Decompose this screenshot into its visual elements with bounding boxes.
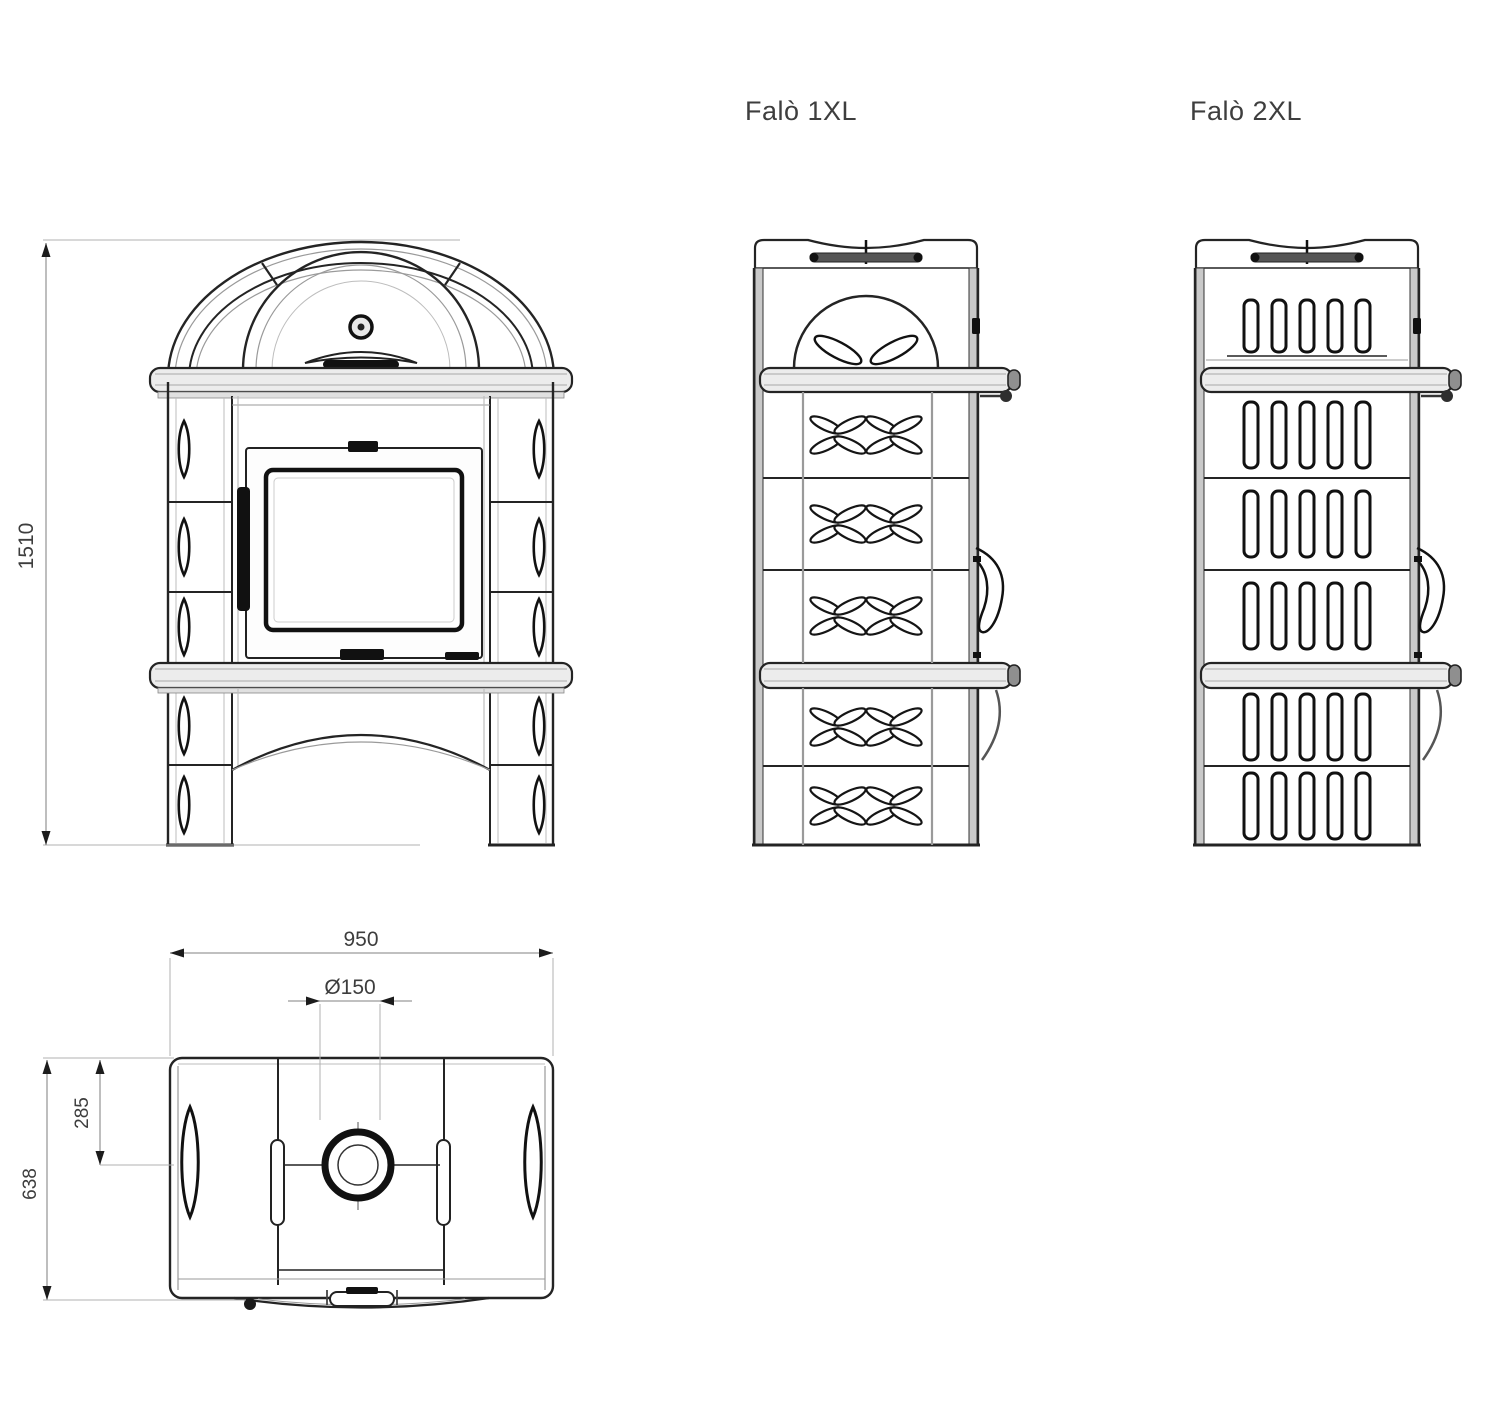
dim-width-label: 950 (343, 928, 378, 951)
panel-pill (271, 1140, 284, 1225)
column-tile-lens (534, 777, 545, 833)
dim-depth-label: 638 (20, 1168, 41, 1200)
column-tile-lens (179, 777, 190, 833)
side-frame (752, 239, 1020, 845)
side-view-1xl (752, 239, 1020, 845)
left-column (166, 382, 234, 845)
door-hinge (237, 487, 250, 611)
side-view-2xl (1193, 239, 1461, 845)
column-tile-lens (179, 599, 190, 655)
stove-technical-drawing: 1510 (0, 0, 1500, 1427)
column-tile-lens (179, 519, 190, 575)
label-falo-2xl: Falò 2XL (1190, 96, 1302, 126)
plan-view (170, 1058, 553, 1310)
plan-door-handle (330, 1292, 394, 1306)
column-tile-lens (534, 519, 545, 575)
column-tile-lens (534, 421, 545, 477)
panel-pill (437, 1140, 450, 1225)
dim-flue-label: Ø150 (324, 976, 375, 999)
label-falo-1xl: Falò 1XL (745, 96, 857, 126)
column-tile-lens (534, 599, 545, 655)
front-view (150, 242, 572, 845)
dim-offset: 285 (43, 1058, 174, 1165)
door-glass (266, 470, 462, 630)
base-apron (232, 688, 490, 770)
side-column-lens (525, 1107, 542, 1217)
column-tile-lens (534, 698, 545, 754)
dim-offset-label: 285 (72, 1097, 93, 1129)
dim-height-label: 1510 (15, 523, 38, 570)
lower-shelf (150, 663, 572, 693)
firebox-door (232, 396, 490, 663)
drawing-svg: 1510 (0, 0, 1500, 1427)
mantel-shelf (150, 368, 572, 398)
column-tile-lens (179, 698, 190, 754)
column-tile-lens (179, 421, 190, 477)
right-column (488, 382, 555, 845)
side-column-lens (182, 1107, 199, 1217)
arch (168, 242, 554, 378)
door-latch (348, 441, 378, 452)
